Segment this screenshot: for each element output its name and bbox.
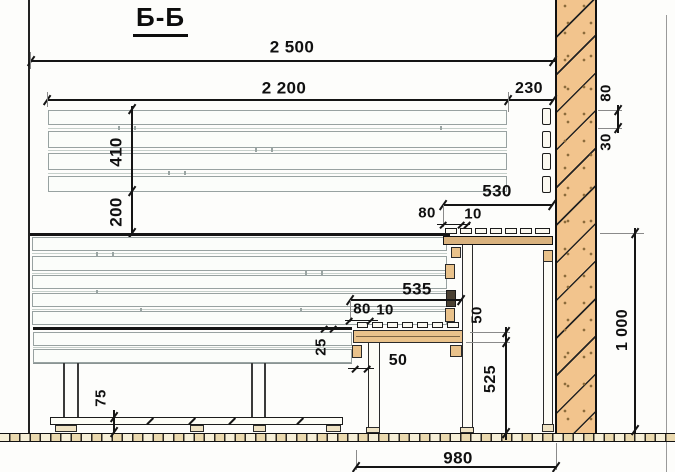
dim-label-50-block: 50 — [389, 353, 408, 369]
rail-foot — [326, 425, 341, 432]
dim-label-50-step: 50 — [470, 306, 485, 324]
extension-line — [30, 52, 31, 69]
shelf-batten — [490, 228, 502, 234]
rail-foot — [55, 425, 77, 432]
board-gap-line — [32, 253, 447, 254]
shelf-support-block — [451, 247, 461, 258]
dim-label-2200: 2 200 — [262, 80, 307, 97]
wall-batten — [542, 153, 551, 170]
joint-mark — [140, 308, 142, 312]
bench-leg — [264, 363, 266, 417]
board-gap-line — [33, 347, 352, 348]
bench-bottom-line — [33, 363, 352, 364]
dim-label-75: 75 — [94, 389, 109, 407]
step-batten — [372, 322, 383, 328]
shelf-batten — [445, 228, 457, 234]
bench-board — [32, 256, 447, 271]
section-title: Б-Б — [133, 2, 188, 37]
step-bracket — [450, 345, 462, 357]
joint-mark — [112, 252, 114, 256]
bench-board — [32, 237, 447, 251]
dim-label-200: 200 — [108, 197, 125, 227]
dim-label-530: 530 — [482, 183, 512, 200]
bench-front-edge — [33, 327, 352, 330]
board-gap-line — [32, 291, 447, 292]
shelf-board — [443, 236, 553, 245]
step-batten — [447, 322, 459, 328]
dim-line-2200 — [47, 99, 553, 101]
dim-label-525: 525 — [483, 365, 499, 393]
dim-label-80-top: 80 — [418, 206, 436, 221]
dim-label-980: 980 — [443, 450, 473, 467]
dim-label-535: 535 — [402, 281, 432, 298]
step-batten — [432, 322, 443, 328]
dim-label-410: 410 — [108, 137, 125, 167]
post-foot — [460, 427, 474, 433]
bench-leg — [63, 363, 65, 417]
board-end-cap — [445, 264, 455, 279]
backrest-board — [48, 110, 507, 125]
dim-line-530 — [443, 204, 553, 206]
joint-mark — [440, 126, 442, 130]
dim-label-80-mid: 80 — [353, 302, 371, 317]
bench-top-edge — [30, 233, 450, 236]
dim-label-10-top: 10 — [464, 207, 482, 222]
shelf-post — [462, 245, 473, 427]
dim-label-80-wall: 80 — [599, 84, 614, 102]
dim-label-10-mid: 10 — [376, 303, 394, 318]
joint-mark — [300, 308, 302, 312]
dim-line-410-200 — [131, 106, 133, 234]
board-gap-line — [48, 173, 507, 174]
joint-mark — [118, 126, 120, 130]
bench-board — [33, 349, 352, 363]
shelf-batten — [535, 228, 550, 234]
extension-line — [600, 233, 644, 234]
dim-line-2500 — [30, 60, 555, 62]
shelf-batten — [475, 228, 487, 234]
joint-mark — [96, 252, 98, 256]
board-gap-line — [32, 273, 447, 274]
joint-mark — [184, 171, 186, 175]
rail-foot — [190, 425, 204, 432]
step-leg — [368, 343, 380, 427]
joint-mark — [321, 271, 323, 275]
frame-right-line — [666, 15, 667, 472]
wall-batten — [542, 131, 551, 148]
wall-batten — [542, 108, 551, 125]
step-batten — [402, 322, 413, 328]
rail-foot — [253, 425, 266, 432]
wall-batten — [542, 176, 551, 193]
dim-label-25: 25 — [314, 338, 329, 356]
step-leg-foot — [366, 427, 380, 433]
step-batten — [387, 322, 398, 328]
shelf-batten — [520, 228, 532, 234]
joint-mark — [255, 148, 257, 152]
joint-mark — [168, 171, 170, 175]
backrest-board — [48, 176, 507, 192]
shelf-batten — [460, 228, 472, 234]
step-end-block — [352, 345, 362, 358]
dim-label-30: 30 — [599, 133, 614, 151]
step-board-line — [356, 336, 460, 337]
dim-label-1000: 1 000 — [615, 309, 631, 351]
joint-mark — [271, 148, 273, 152]
bench-board — [33, 332, 352, 346]
dim-label-2500: 2 500 — [270, 39, 315, 56]
shelf-support-block — [543, 250, 553, 262]
extension-line — [508, 92, 509, 112]
joint-mark — [134, 126, 136, 130]
joint-mark — [305, 271, 307, 275]
floor-tiles — [0, 433, 675, 442]
step-batten — [417, 322, 428, 328]
board-gap-line — [48, 128, 507, 129]
shelf-batten — [505, 228, 517, 234]
bench-board — [32, 275, 447, 289]
section-drawing: Б-Б 2 500 2 200 230 80 30 410 200 — [0, 0, 675, 472]
wall-post — [543, 262, 553, 425]
bench-leg — [251, 363, 253, 417]
joint-mark — [96, 290, 98, 294]
dim-line-1000 — [634, 228, 636, 433]
extension-line — [47, 92, 48, 107]
wall-hatched — [555, 0, 597, 433]
bench-leg — [77, 363, 79, 417]
post-foot — [542, 424, 554, 432]
board-end-cap — [445, 308, 455, 322]
dim-label-230: 230 — [515, 81, 543, 97]
